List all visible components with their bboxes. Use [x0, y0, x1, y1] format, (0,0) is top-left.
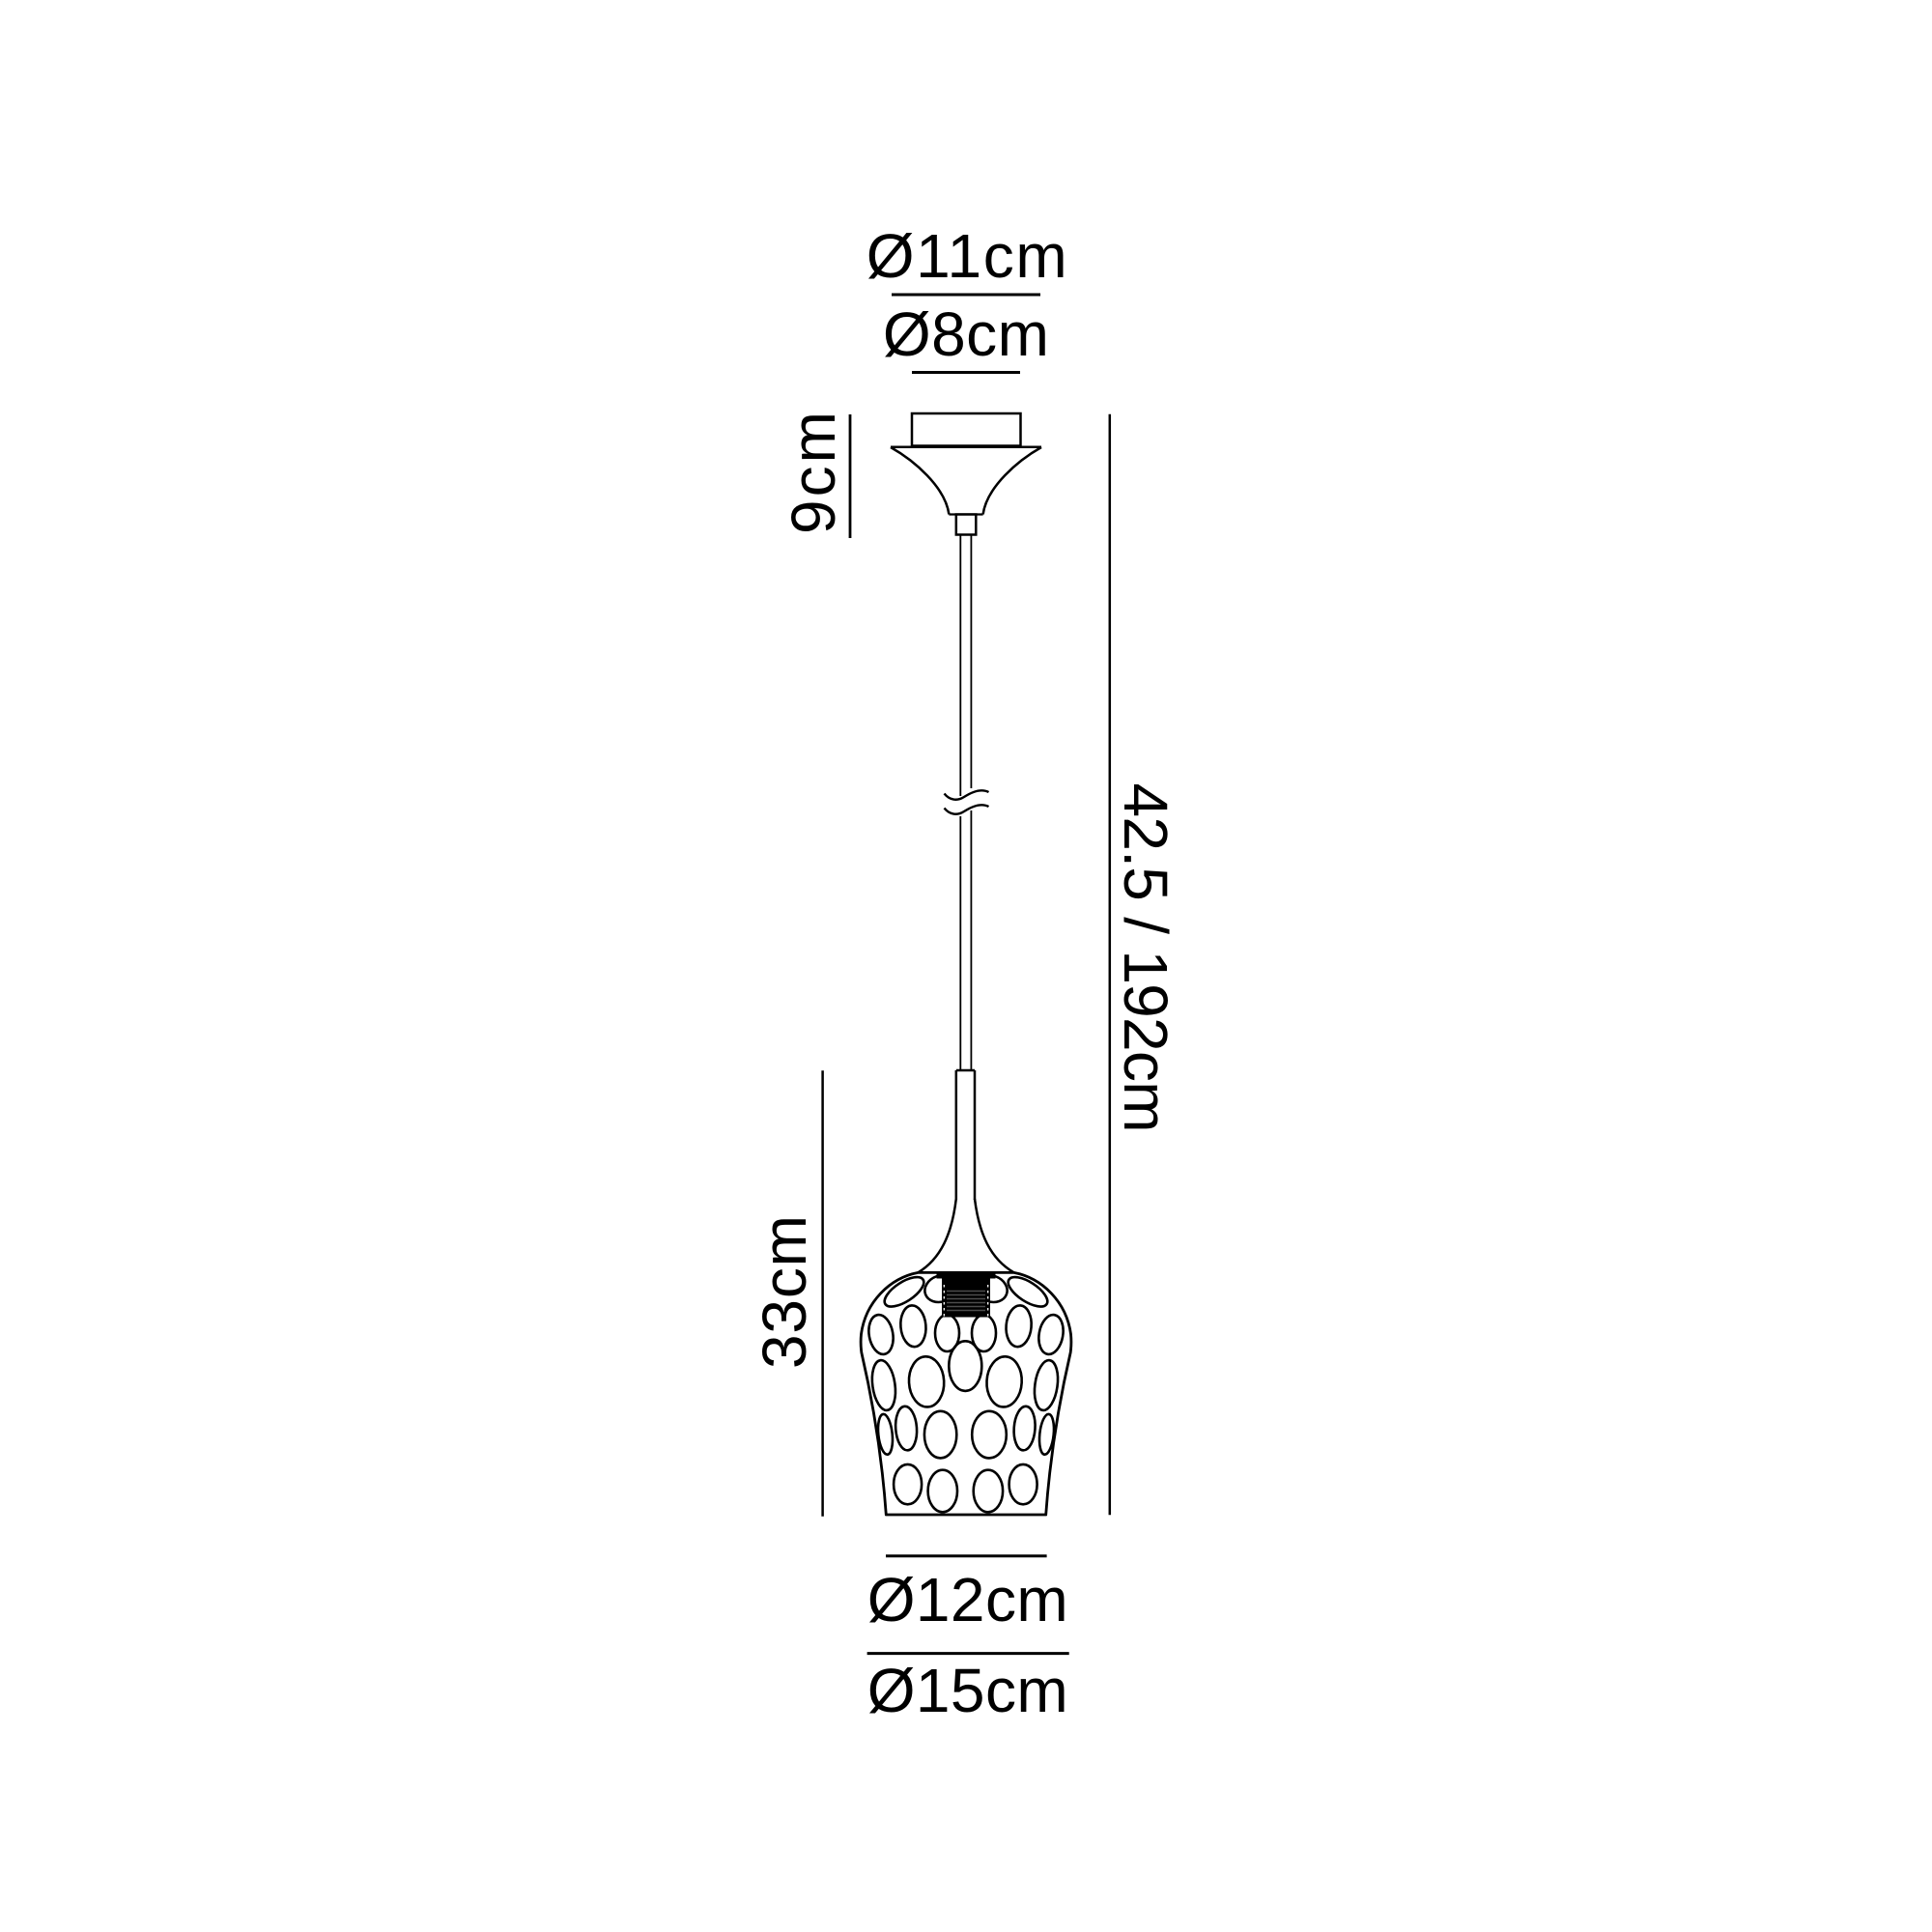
svg-text:Ø15cm: Ø15cm [867, 1656, 1068, 1725]
svg-text:42.5 / 192cm: 42.5 / 192cm [1111, 783, 1180, 1133]
svg-text:Ø11cm: Ø11cm [867, 221, 1067, 291]
svg-text:9cm: 9cm [779, 412, 848, 534]
svg-text:Ø12cm: Ø12cm [867, 1565, 1068, 1634]
svg-text:Ø8cm: Ø8cm [883, 299, 1049, 369]
svg-text:33cm: 33cm [750, 1215, 819, 1369]
